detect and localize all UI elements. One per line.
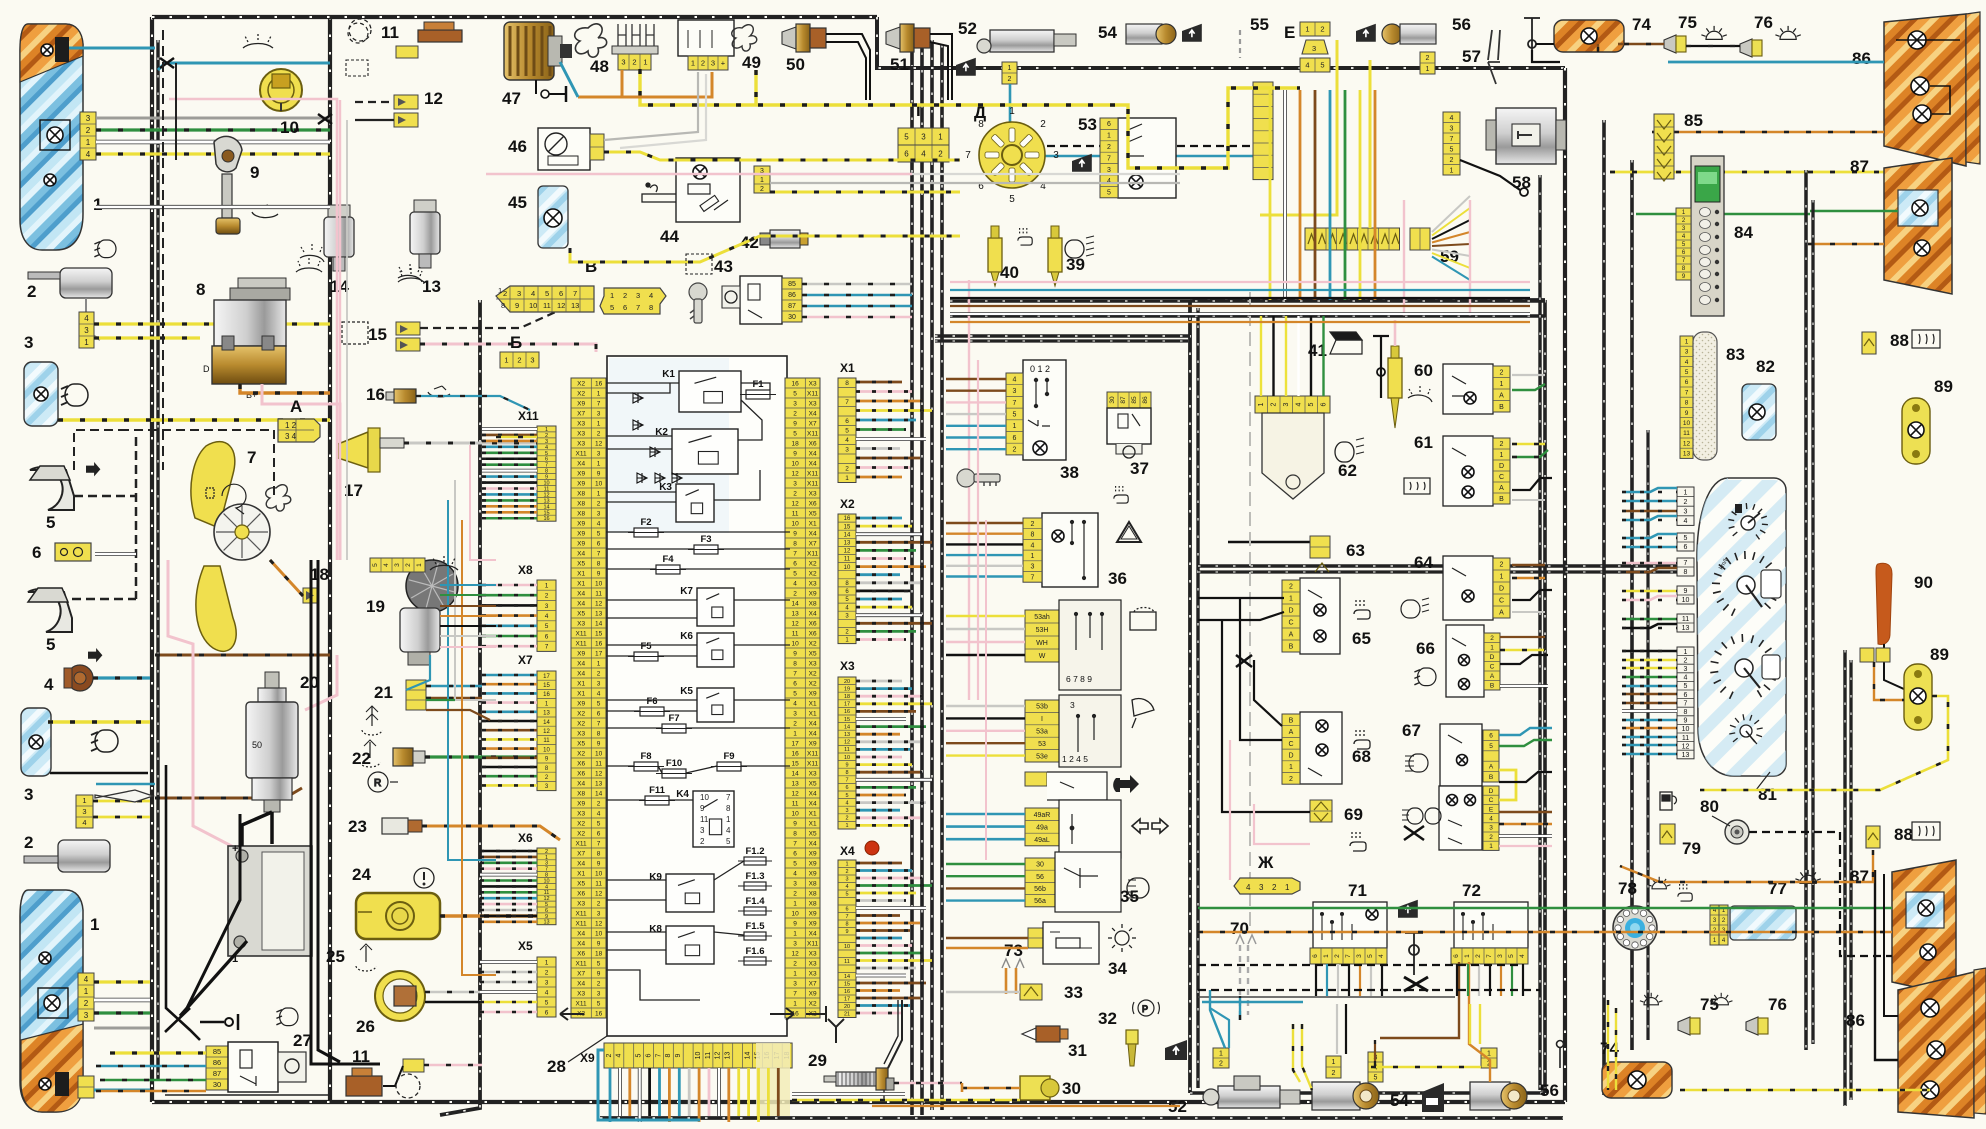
svg-text:3: 3: [711, 59, 715, 68]
svg-text:5: 5: [726, 837, 731, 846]
svg-text:1: 1: [1489, 843, 1493, 850]
svg-text:2: 2: [793, 960, 797, 967]
svg-text:X3: X3: [577, 810, 585, 817]
svg-text:2: 2: [1490, 635, 1494, 642]
svg-text:1: 1: [1008, 65, 1012, 72]
svg-text:X11: X11: [807, 480, 818, 487]
svg-text:1: 1: [793, 1000, 797, 1007]
svg-text:8: 8: [196, 280, 205, 299]
svg-text:10: 10: [1682, 726, 1690, 733]
svg-text:2: 2: [938, 149, 943, 158]
svg-text:X1: X1: [577, 690, 585, 697]
svg-text:4: 4: [1685, 359, 1689, 366]
svg-text:10: 10: [791, 460, 799, 467]
svg-text:5: 5: [597, 1000, 601, 1007]
svg-text:X1: X1: [577, 680, 585, 687]
svg-text:X2: X2: [840, 497, 855, 511]
svg-text:9: 9: [700, 804, 705, 813]
svg-text:56: 56: [1452, 15, 1471, 34]
svg-text:10: 10: [695, 1052, 702, 1060]
svg-text:12: 12: [791, 620, 799, 627]
svg-text:13: 13: [1682, 625, 1690, 632]
svg-text:11: 11: [543, 738, 550, 744]
svg-text:1: 1: [416, 563, 423, 567]
svg-text:12: 12: [791, 950, 799, 957]
svg-text:X6: X6: [577, 770, 585, 777]
svg-text:X5: X5: [809, 510, 817, 517]
svg-text:15: 15: [368, 325, 387, 344]
svg-text:23: 23: [348, 817, 367, 836]
svg-text:14: 14: [791, 600, 799, 607]
svg-text:3: 3: [1259, 883, 1264, 892]
svg-text:4: 4: [1450, 115, 1454, 122]
svg-text:F4: F4: [662, 554, 674, 565]
svg-text:X11: X11: [807, 470, 818, 477]
svg-text:6: 6: [1453, 954, 1460, 958]
svg-text:52: 52: [958, 19, 977, 38]
svg-text:18: 18: [595, 950, 603, 957]
svg-text:8: 8: [1685, 400, 1689, 407]
svg-text:16: 16: [595, 380, 603, 387]
svg-text:X1: X1: [809, 700, 817, 707]
svg-text:2: 2: [1489, 834, 1493, 841]
svg-text:5: 5: [1107, 190, 1111, 197]
svg-text:X3: X3: [577, 620, 585, 627]
svg-text:13: 13: [595, 780, 603, 787]
svg-text:2: 2: [1426, 55, 1430, 62]
svg-text:X3: X3: [577, 730, 585, 737]
svg-text:3: 3: [793, 980, 797, 987]
svg-text:F5: F5: [640, 641, 652, 652]
svg-text:20: 20: [844, 1004, 850, 1010]
svg-text:X1: X1: [577, 870, 585, 877]
svg-text:3: 3: [845, 808, 848, 814]
svg-text:86: 86: [1142, 396, 1149, 404]
svg-text:8: 8: [793, 660, 797, 667]
svg-text:8: 8: [597, 560, 601, 567]
svg-text:21: 21: [844, 1012, 850, 1018]
svg-text:X7: X7: [809, 420, 817, 427]
svg-text:14: 14: [543, 720, 550, 726]
svg-text:3: 3: [845, 877, 848, 883]
svg-text:X7: X7: [577, 850, 585, 857]
svg-text:6: 6: [793, 680, 797, 687]
svg-text:5: 5: [1320, 61, 1324, 70]
svg-text:X4: X4: [577, 590, 585, 597]
svg-text:X4: X4: [577, 670, 585, 677]
svg-text:25: 25: [326, 947, 345, 966]
svg-text:3: 3: [1053, 150, 1059, 161]
svg-text:3: 3: [84, 1011, 89, 1020]
svg-text:6: 6: [1321, 402, 1328, 406]
svg-text:7: 7: [793, 670, 797, 677]
svg-text:5: 5: [1374, 1075, 1378, 1082]
svg-text:65: 65: [1352, 629, 1371, 648]
svg-text:13: 13: [543, 711, 550, 717]
svg-text:20: 20: [844, 679, 850, 685]
svg-text:8: 8: [726, 804, 731, 813]
svg-text:35: 35: [1120, 887, 1139, 906]
svg-text:10: 10: [595, 930, 603, 937]
svg-text:X7: X7: [577, 970, 585, 977]
svg-text:29: 29: [808, 1051, 827, 1070]
svg-text:6: 6: [645, 1053, 652, 1057]
svg-text:1: 1: [93, 195, 102, 214]
svg-text:10: 10: [844, 944, 850, 950]
svg-text:2: 2: [503, 289, 507, 298]
svg-text:X9: X9: [577, 800, 585, 807]
svg-text:1: 1: [545, 959, 549, 966]
svg-text:X2: X2: [577, 380, 585, 387]
svg-text:1: 1: [1426, 66, 1430, 73]
svg-text:2: 2: [545, 969, 549, 976]
svg-text:X6: X6: [809, 500, 817, 507]
svg-text:7: 7: [655, 1053, 662, 1057]
svg-text:19: 19: [844, 686, 850, 692]
svg-text:1: 1: [793, 970, 797, 977]
svg-text:11: 11: [595, 760, 602, 767]
svg-text:43: 43: [714, 257, 733, 276]
svg-text:4: 4: [649, 291, 653, 300]
svg-text:2: 2: [1031, 521, 1035, 528]
svg-text:9: 9: [597, 970, 601, 977]
svg-text:6: 6: [1107, 121, 1111, 128]
svg-text:A: A: [1499, 392, 1504, 399]
svg-text:7: 7: [845, 914, 848, 920]
svg-text:3: 3: [845, 447, 849, 454]
svg-text:12: 12: [844, 740, 850, 746]
svg-text:X8: X8: [577, 500, 585, 507]
svg-text:5: 5: [904, 132, 909, 141]
svg-text:X8: X8: [809, 890, 817, 897]
svg-text:X9: X9: [577, 480, 585, 487]
svg-text:5: 5: [793, 570, 797, 577]
svg-text:9: 9: [793, 820, 797, 827]
svg-text:86: 86: [1846, 1011, 1865, 1030]
svg-text:F3: F3: [700, 534, 711, 545]
svg-text:8: 8: [597, 730, 601, 737]
svg-text:3: 3: [1489, 825, 1493, 832]
svg-text:10: 10: [1683, 420, 1691, 427]
svg-text:5: 5: [845, 793, 848, 799]
svg-text:5: 5: [597, 820, 601, 827]
svg-text:53b: 53b: [1036, 704, 1048, 711]
svg-text:85: 85: [1131, 396, 1138, 404]
svg-text:18: 18: [791, 440, 799, 447]
svg-text:Е: Е: [1284, 23, 1295, 42]
svg-text:13: 13: [791, 780, 799, 787]
svg-text:2: 2: [517, 356, 521, 365]
svg-text:67: 67: [1402, 721, 1421, 740]
svg-text:14: 14: [791, 770, 799, 777]
svg-text:6: 6: [845, 785, 848, 791]
svg-text:86: 86: [788, 292, 796, 299]
svg-text:30: 30: [213, 1080, 221, 1089]
svg-text:4: 4: [1013, 376, 1017, 383]
svg-text:1: 1: [1009, 106, 1015, 117]
svg-text:X2: X2: [577, 390, 585, 397]
svg-text:40: 40: [1000, 263, 1019, 282]
svg-text:13: 13: [422, 277, 441, 296]
svg-text:X4: X4: [577, 600, 585, 607]
svg-text:3: 3: [597, 450, 601, 457]
svg-text:6: 6: [32, 543, 41, 562]
svg-text:22: 22: [352, 749, 371, 768]
svg-text:32: 32: [1098, 1009, 1117, 1028]
svg-text:56b: 56b: [1034, 886, 1046, 893]
svg-text:1: 1: [1013, 423, 1017, 430]
svg-text:5: 5: [793, 690, 797, 697]
svg-text:60: 60: [1414, 361, 1433, 380]
svg-text:13: 13: [791, 610, 799, 617]
svg-text:3: 3: [1013, 388, 1017, 395]
svg-text:1: 1: [1285, 883, 1290, 892]
svg-text:16: 16: [791, 750, 799, 757]
svg-text:90: 90: [1914, 573, 1933, 592]
svg-text:6: 6: [1312, 954, 1319, 958]
svg-text:K5: K5: [680, 686, 693, 697]
svg-text:2: 2: [84, 999, 89, 1008]
svg-text:1: 1: [760, 177, 764, 184]
svg-text:86: 86: [213, 1058, 221, 1067]
svg-text:X11: X11: [576, 450, 587, 457]
svg-text:4: 4: [597, 690, 601, 697]
svg-text:1: 1: [597, 460, 601, 467]
svg-text:F1: F1: [752, 379, 764, 390]
svg-text:1: 1: [1289, 596, 1293, 603]
svg-text:X3: X3: [577, 440, 585, 447]
svg-text:12: 12: [595, 440, 603, 447]
svg-text:X9: X9: [577, 520, 585, 527]
svg-text:4: 4: [545, 613, 549, 620]
svg-text:3: 3: [545, 979, 549, 986]
svg-text:3: 3: [793, 710, 797, 717]
svg-text:53: 53: [1078, 115, 1097, 134]
svg-text:X4: X4: [809, 800, 817, 807]
svg-text:3: 3: [1684, 666, 1688, 673]
svg-text:11: 11: [792, 800, 799, 807]
svg-text:7: 7: [597, 720, 601, 727]
svg-text:1: 1: [1289, 764, 1293, 771]
svg-text:X5: X5: [809, 780, 817, 787]
svg-text:5: 5: [845, 892, 848, 898]
svg-text:A: A: [1490, 673, 1495, 680]
svg-text:1: 1: [1684, 489, 1688, 496]
svg-text:4: 4: [845, 437, 849, 444]
svg-text:11: 11: [844, 557, 851, 563]
svg-text:X4: X4: [809, 610, 817, 617]
svg-text:16: 16: [844, 709, 850, 715]
svg-text:46: 46: [508, 137, 527, 156]
svg-text:1: 1: [1685, 338, 1689, 345]
svg-text:10: 10: [529, 301, 537, 310]
svg-text:K9: K9: [649, 872, 662, 883]
svg-text:3: 3: [636, 291, 640, 300]
svg-text:12: 12: [595, 890, 603, 897]
svg-text:9: 9: [675, 1053, 682, 1057]
svg-text:11: 11: [1682, 616, 1689, 623]
svg-text:F11: F11: [649, 785, 666, 796]
svg-text:7: 7: [726, 793, 731, 802]
svg-text:4: 4: [1305, 61, 1309, 70]
svg-text:1: 1: [1487, 1051, 1491, 1058]
svg-text:9: 9: [515, 301, 519, 310]
svg-text:4: 4: [616, 1053, 623, 1057]
svg-text:17: 17: [543, 674, 550, 680]
svg-text:4: 4: [793, 580, 797, 587]
svg-text:1: 1: [793, 900, 797, 907]
svg-text:X9: X9: [577, 530, 585, 537]
svg-text:4: 4: [845, 884, 848, 890]
svg-text:X4: X4: [809, 530, 817, 537]
svg-text:5: 5: [793, 860, 797, 867]
svg-text:X11: X11: [807, 750, 818, 757]
svg-text:89: 89: [1934, 377, 1953, 396]
svg-text:4: 4: [82, 818, 86, 827]
svg-text:36: 36: [1108, 569, 1127, 588]
svg-text:5: 5: [1684, 683, 1688, 690]
svg-text:3: 3: [793, 880, 797, 887]
svg-text:15: 15: [844, 982, 850, 988]
svg-text:3: 3: [1107, 167, 1111, 174]
svg-text:30: 30: [788, 314, 796, 321]
svg-text:1 2 4 5: 1 2 4 5: [1062, 754, 1088, 764]
svg-text:14: 14: [844, 724, 850, 730]
svg-text:3: 3: [921, 132, 926, 141]
svg-text:5: 5: [597, 530, 601, 537]
svg-text:5: 5: [1684, 535, 1688, 542]
svg-text:16: 16: [844, 516, 851, 522]
svg-text:A: A: [1289, 632, 1294, 639]
svg-text:P: P: [1142, 1004, 1148, 1014]
svg-text:B: B: [1490, 683, 1494, 690]
svg-text:2: 2: [597, 800, 601, 807]
svg-text:21: 21: [374, 683, 393, 702]
svg-text:X4: X4: [577, 930, 585, 937]
svg-text:10: 10: [595, 580, 603, 587]
svg-text:18: 18: [844, 694, 850, 700]
svg-text:6: 6: [545, 1009, 549, 1016]
svg-text:D: D: [203, 364, 210, 374]
svg-text:11: 11: [700, 815, 709, 824]
svg-text:X9: X9: [809, 690, 817, 697]
svg-text:X6: X6: [809, 620, 817, 627]
svg-text:C: C: [1288, 741, 1293, 748]
svg-text:K8: K8: [649, 924, 662, 935]
svg-text:75: 75: [1678, 13, 1697, 32]
svg-text:2: 2: [845, 869, 848, 875]
svg-text:F1.5: F1.5: [745, 921, 765, 932]
svg-text:2: 2: [1684, 499, 1688, 506]
svg-text:3 4: 3 4: [285, 432, 297, 441]
svg-text:7: 7: [1031, 574, 1035, 581]
svg-text:7: 7: [1345, 954, 1352, 958]
svg-text:2: 2: [1008, 76, 1012, 83]
svg-text:A: A: [1289, 729, 1294, 736]
svg-text:+: +: [721, 59, 726, 68]
svg-text:X7: X7: [809, 540, 817, 547]
svg-text:9: 9: [1685, 410, 1689, 417]
svg-text:X3: X3: [809, 490, 817, 497]
svg-text:X11: X11: [807, 760, 818, 767]
svg-text:26: 26: [356, 1017, 375, 1036]
svg-text:2: 2: [1271, 402, 1278, 406]
svg-text:X6: X6: [809, 630, 817, 637]
svg-text:87: 87: [1850, 157, 1869, 176]
svg-text:13: 13: [1682, 752, 1690, 759]
svg-text:X2: X2: [809, 1000, 817, 1007]
svg-text:62: 62: [1338, 461, 1357, 480]
svg-text:X9: X9: [809, 590, 817, 597]
svg-text:1: 1: [1323, 954, 1330, 958]
svg-text:5: 5: [845, 428, 849, 435]
svg-text:81: 81: [1758, 785, 1777, 804]
svg-text:66: 66: [1416, 639, 1435, 658]
svg-text:D: D: [1489, 788, 1494, 795]
svg-text:14: 14: [844, 974, 850, 980]
svg-text:84: 84: [1734, 223, 1753, 242]
svg-text:12: 12: [543, 729, 550, 735]
svg-text:63: 63: [1346, 541, 1365, 560]
svg-text:5: 5: [1009, 194, 1015, 205]
svg-text:2: 2: [793, 720, 797, 727]
svg-text:X11: X11: [807, 390, 818, 397]
svg-text:K6: K6: [680, 631, 693, 642]
svg-text:3: 3: [793, 940, 797, 947]
svg-text:1: 1: [90, 915, 99, 934]
svg-text:X7: X7: [809, 980, 817, 987]
svg-text:6: 6: [597, 710, 601, 717]
svg-text:2: 2: [1289, 584, 1293, 591]
svg-text:K4: K4: [676, 789, 689, 800]
svg-text:15: 15: [844, 524, 851, 530]
svg-text:X3: X3: [809, 580, 817, 587]
svg-text:14: 14: [595, 790, 603, 797]
svg-text:1: 1: [1464, 954, 1471, 958]
svg-text:1: 1: [643, 58, 647, 67]
svg-text:X2: X2: [809, 560, 817, 567]
svg-text:3: 3: [1312, 44, 1316, 53]
svg-text:2: 2: [845, 816, 848, 822]
svg-text:X1: X1: [809, 820, 817, 827]
svg-text:X1: X1: [840, 361, 855, 375]
svg-text:2: 2: [793, 410, 797, 417]
svg-text:4: 4: [1296, 402, 1303, 406]
svg-text:1: 1: [726, 815, 731, 824]
svg-text:11: 11: [543, 301, 551, 310]
svg-text:56: 56: [1540, 1081, 1559, 1100]
svg-text:17: 17: [595, 650, 603, 657]
svg-text:3: 3: [597, 680, 601, 687]
svg-text:1: 1: [1490, 645, 1494, 652]
svg-text:33: 33: [1064, 983, 1083, 1002]
svg-text:10: 10: [791, 910, 799, 917]
svg-text:2: 2: [700, 837, 705, 846]
svg-text:2: 2: [1500, 562, 1504, 569]
svg-text:3: 3: [621, 58, 625, 67]
svg-text:9: 9: [597, 470, 601, 477]
svg-text:71: 71: [1348, 881, 1367, 900]
svg-text:4: 4: [1246, 883, 1251, 892]
svg-text:2: 2: [606, 1053, 613, 1057]
svg-text:3: 3: [1450, 125, 1454, 132]
svg-text:8: 8: [501, 301, 505, 310]
svg-text:D: D: [1288, 608, 1293, 615]
svg-text:53H: 53H: [1036, 627, 1049, 634]
svg-text:X4: X4: [577, 550, 585, 557]
svg-text:45: 45: [508, 193, 527, 212]
svg-text:9: 9: [793, 650, 797, 657]
